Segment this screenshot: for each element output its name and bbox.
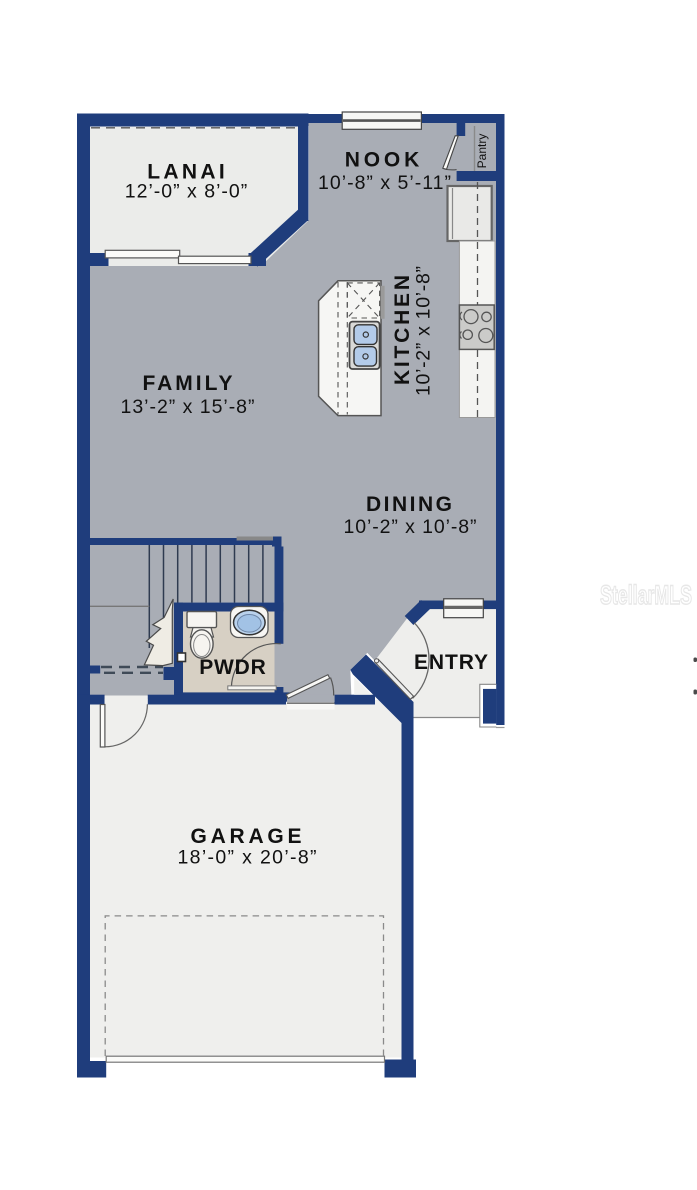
svg-text:Pantry: Pantry (475, 134, 489, 169)
svg-text:DINING: DINING (366, 493, 452, 516)
svg-text:ENTRY: ENTRY (414, 651, 488, 674)
svg-text:12’-0” x 8’-0”: 12’-0” x 8’-0” (125, 181, 248, 203)
svg-text:StellarMLS: StellarMLS (600, 580, 692, 610)
svg-text:10’-8” x 5’-11”: 10’-8” x 5’-11” (318, 172, 451, 194)
svg-text:13’-2” x 15’-8”: 13’-2” x 15’-8” (121, 396, 255, 418)
svg-text:18’-0” x 20’-8”: 18’-0” x 20’-8” (178, 847, 317, 869)
svg-text:PWDR: PWDR (199, 656, 266, 679)
svg-text:10’-2” x 10’-8”: 10’-2” x 10’-8” (413, 266, 435, 396)
svg-text:10’-2” x 10’-8”: 10’-2” x 10’-8” (344, 516, 477, 538)
